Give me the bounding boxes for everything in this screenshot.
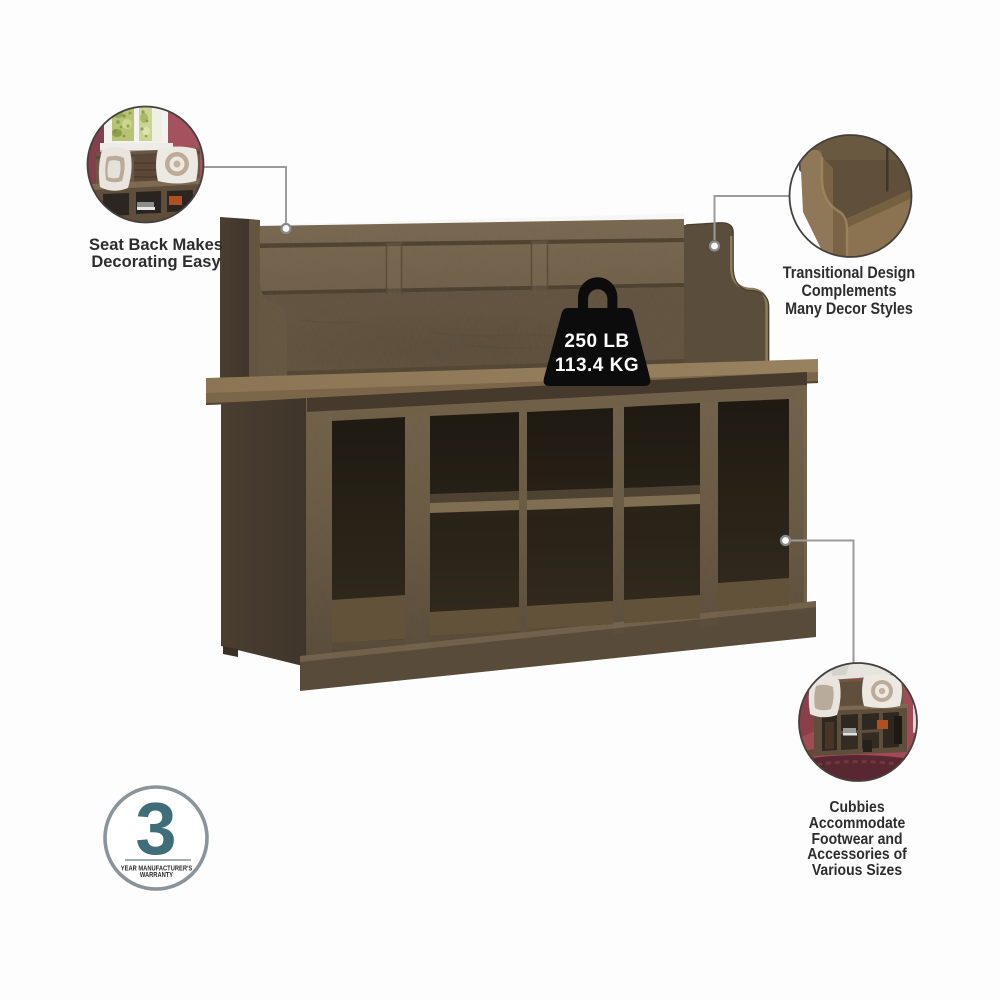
svg-text:3: 3 (135, 787, 176, 870)
svg-text:113.4 KG: 113.4 KG (555, 355, 639, 376)
svg-text:250 LB: 250 LB (564, 331, 629, 352)
svg-text:WARRANTY: WARRANTY (140, 871, 174, 879)
